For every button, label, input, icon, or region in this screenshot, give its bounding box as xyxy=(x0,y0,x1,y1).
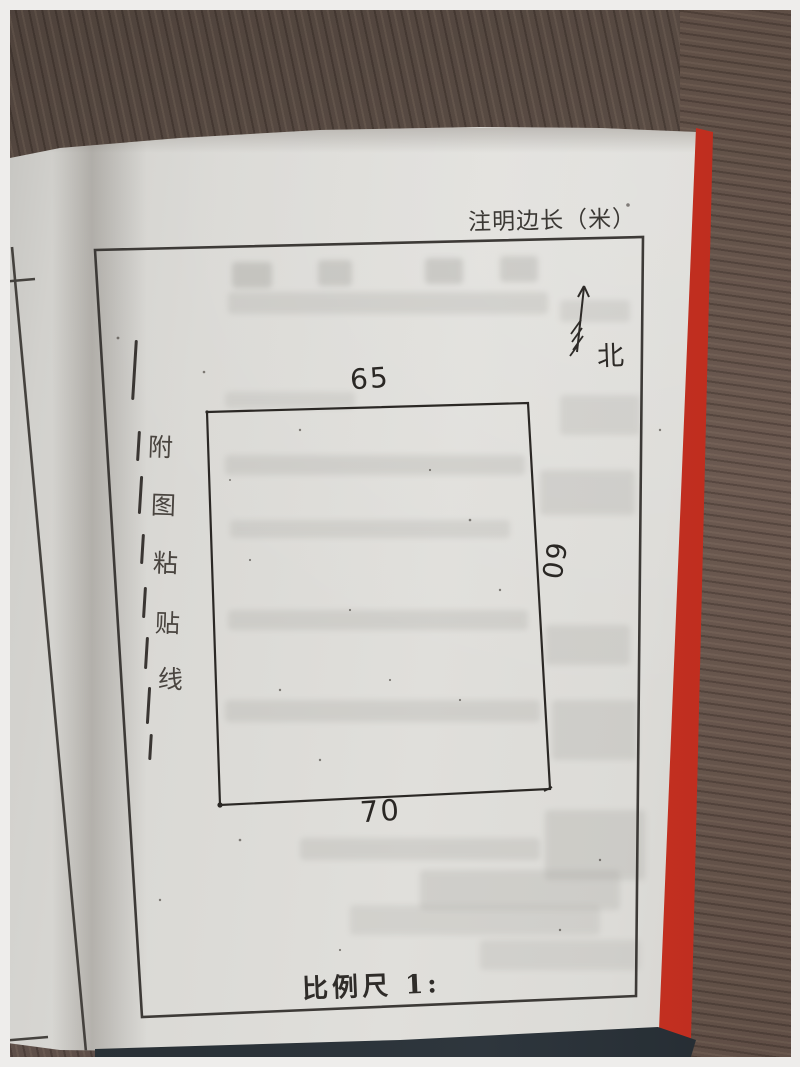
parcel-rectangle xyxy=(207,403,550,805)
paste-line-char: 附 xyxy=(147,428,173,465)
corner-dot xyxy=(217,802,222,807)
paste-line-char: 图 xyxy=(150,486,176,523)
north-arrow-icon xyxy=(570,286,589,356)
paste-line-char: 粘 xyxy=(152,544,178,581)
photo-border-top xyxy=(0,0,800,10)
dust-specks xyxy=(117,203,662,951)
dimension-top: 65 xyxy=(349,361,391,397)
dimension-bottom: 70 xyxy=(359,793,402,830)
north-label: 北 xyxy=(596,334,624,374)
corner-dot xyxy=(205,410,208,413)
side-length-note: 注明边长（米） xyxy=(468,199,637,237)
left-page-frame-line xyxy=(12,247,86,1052)
scale-label: 比例尺 1: xyxy=(301,963,441,1006)
photo-of-book-page: 注明边长（米） 北 65 60 70 比例尺 1: 附 图 粘 贴 线 xyxy=(0,0,800,1067)
paste-line-char: 贴 xyxy=(154,604,180,641)
photo-border-left xyxy=(0,0,10,1067)
photo-border-right xyxy=(791,0,800,1067)
paste-line-char: 线 xyxy=(157,660,183,697)
dimension-right: 60 xyxy=(535,540,572,583)
photo-border-bottom xyxy=(0,1057,800,1067)
